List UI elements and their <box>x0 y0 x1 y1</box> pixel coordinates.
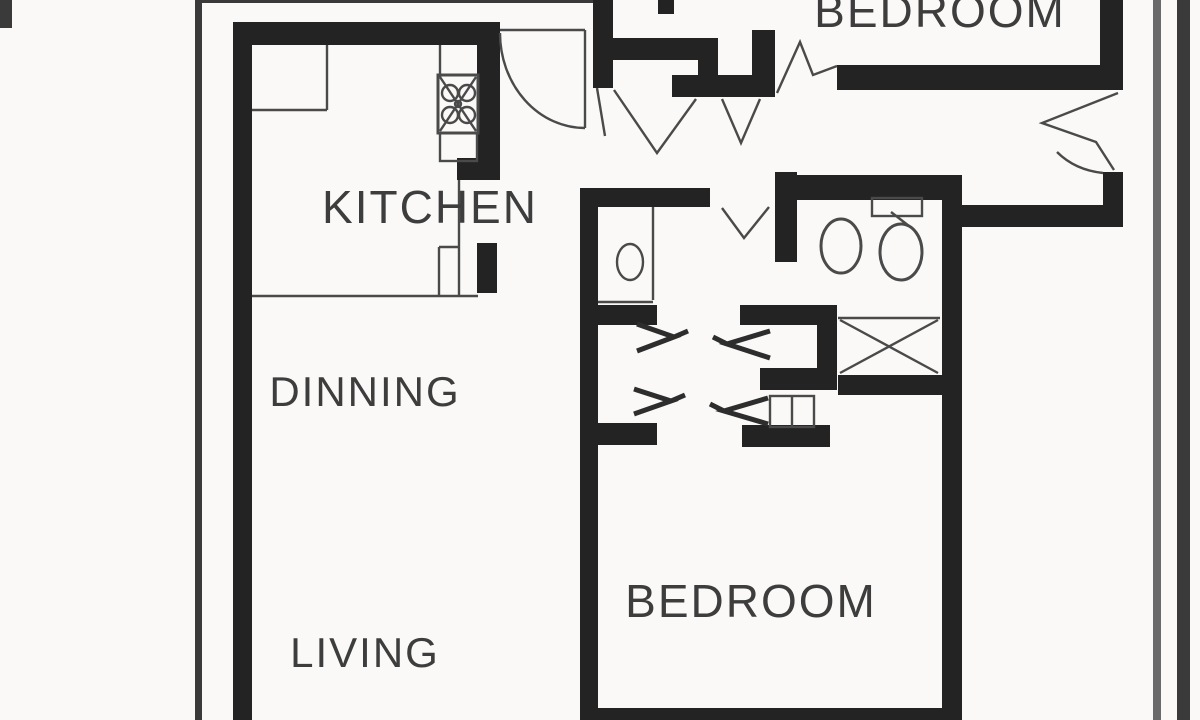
room-label-bedroom-top: BEDROOM <box>814 0 1066 37</box>
page-edge-left <box>195 0 202 720</box>
floorplan-drawing: BEDROOM KITCHEN DINNING LIVING BEDROOM <box>0 0 1200 720</box>
wall-bottom <box>582 708 962 720</box>
wall-mid-left <box>580 188 598 720</box>
room-label-dinning: DINNING <box>269 368 460 415</box>
scan-corner-mark <box>0 0 12 28</box>
room-label-bedroom-bottom: BEDROOM <box>625 575 877 627</box>
wall-bedroom-top-right <box>1100 0 1123 90</box>
wall-vestibule-upper <box>613 38 718 60</box>
wall-closet-bottom <box>760 368 837 390</box>
page-edge-right-inner <box>1153 0 1161 720</box>
wall-kitchen-right <box>477 40 500 180</box>
wall-kitchen-stub <box>477 243 497 293</box>
wall-kitchen-top <box>233 22 500 45</box>
page-edge-top <box>195 0 593 3</box>
room-label-kitchen: KITCHEN <box>322 181 538 233</box>
wall-right-main <box>942 175 962 720</box>
wall-hall-step <box>950 205 1123 227</box>
wall-bedroom-entry-right <box>742 425 830 447</box>
floorplan-page: BEDROOM KITCHEN DINNING LIVING BEDROOM <box>0 0 1200 720</box>
wall-vestibule-right <box>752 30 775 97</box>
wall-left-outer <box>233 22 252 720</box>
wall-bedroom-entry-left <box>580 423 657 445</box>
wall-bathroom-top <box>788 175 962 200</box>
room-label-living: LIVING <box>290 629 440 676</box>
wall-xcloset-bottom <box>838 375 962 395</box>
wall-bedroom-top-bottom <box>837 65 1123 90</box>
page-edge-right-outer <box>1177 0 1190 720</box>
wall-vestibule-left <box>593 0 613 88</box>
wall-top-tab <box>658 0 674 14</box>
wall-wc-top <box>580 188 710 207</box>
wall-bathroom-left <box>775 172 797 262</box>
wall-wc-bottom <box>580 305 657 325</box>
